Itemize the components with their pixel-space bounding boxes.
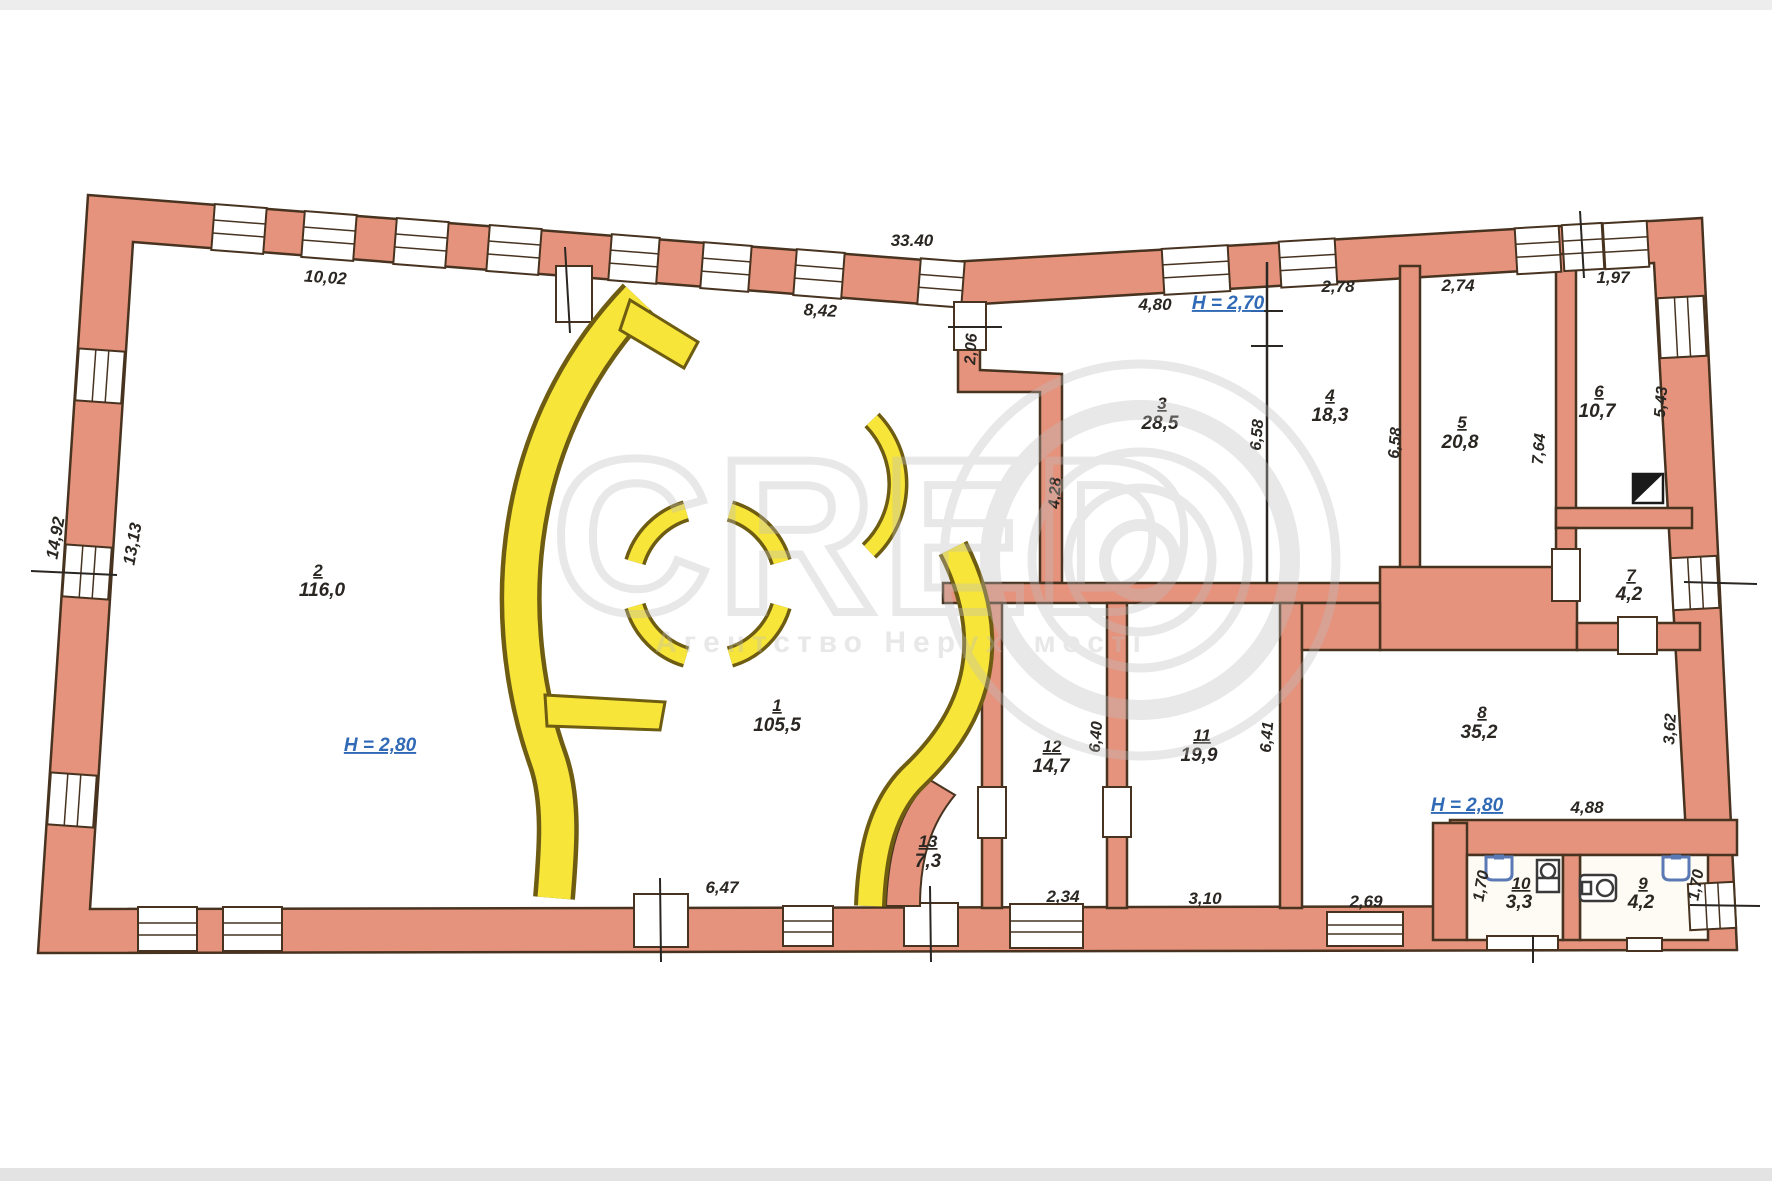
dim-top-total: 33.40: [891, 231, 934, 250]
vent-shaft-icon: [1633, 474, 1663, 503]
door-room12-right: [1103, 787, 1131, 837]
window: [917, 258, 964, 307]
window: [608, 234, 659, 284]
scan-edge-bottom: [0, 1168, 1772, 1181]
room-5-number: 5: [1457, 413, 1467, 432]
window: [793, 249, 844, 299]
window: [47, 772, 97, 827]
height-top: H = 2,70: [1192, 293, 1265, 314]
room-6-number: 6: [1594, 382, 1604, 401]
toilet-icon: [1537, 860, 1559, 892]
room-9-area: 4,2: [1627, 892, 1655, 913]
room-10-number: 10: [1512, 874, 1531, 893]
wall-room8-bottom: [1450, 820, 1737, 855]
height-room8: H = 2,80: [1431, 795, 1504, 816]
window: [393, 218, 448, 268]
window: [783, 906, 833, 946]
dim-hall-door: 2,06: [962, 333, 981, 366]
window: [1010, 904, 1083, 948]
room-10-area: 3,3: [1506, 892, 1533, 913]
door-room7-left: [1552, 549, 1580, 601]
dim-room8-right: 3,62: [1661, 713, 1680, 745]
room-4-area: 18,3: [1312, 405, 1349, 426]
window: [700, 242, 751, 292]
vent-slot-room10: [1487, 936, 1558, 950]
door-room7-bottom: [1618, 617, 1657, 654]
sink-icon: [1663, 857, 1689, 880]
window: [223, 907, 282, 951]
dim-room6-depth: 5,43: [1652, 386, 1672, 419]
opening-room2-room1: [556, 266, 592, 322]
watermark-subtitle: Агентство Нерухомості: [655, 626, 1148, 659]
scan-edge-top: [0, 0, 1772, 10]
dim-room4-width: 2,78: [1320, 277, 1355, 296]
floor-plan-drawing: 1 105,5 2 116,0 3 28,5 4 18,3 5 20,8 6 1…: [0, 0, 1772, 1181]
room-1-number: 1: [772, 696, 781, 715]
room-2-number: 2: [312, 561, 323, 580]
window: [211, 204, 266, 254]
tick-room13-door: [930, 886, 931, 962]
dim-room4-depth: 6,58: [1386, 427, 1406, 460]
window: [138, 907, 197, 951]
room-7-area: 4,2: [1615, 584, 1643, 605]
window: [1657, 296, 1706, 358]
dim-room5-width: 2,74: [1440, 276, 1475, 295]
wall-room12-right-lower: [1107, 835, 1127, 908]
wall-room5-room6: [1556, 254, 1576, 528]
room-13-area: 7,3: [915, 851, 942, 872]
wall-room7-bottom-right: [1655, 623, 1700, 650]
wall-room10-room9: [1563, 855, 1580, 940]
window: [75, 348, 125, 403]
wall-room7-bottom-left: [1577, 623, 1620, 650]
dim-room6-window: 1,97: [1596, 268, 1631, 287]
tick-entrance: [660, 878, 661, 962]
room-8-number: 8: [1477, 703, 1487, 722]
dim-room12-bottom: 2,34: [1045, 887, 1080, 906]
window: [1327, 912, 1403, 946]
room-13-number: 13: [919, 832, 938, 851]
dim-bottom-left: 6,47: [705, 878, 740, 897]
room-4-number: 4: [1324, 386, 1335, 405]
wall-room11-right: [1280, 603, 1302, 908]
room-2-area: 116,0: [299, 580, 346, 601]
scanned-floor-plan-page: 1 105,5 2 116,0 3 28,5 4 18,3 5 20,8 6 1…: [0, 0, 1772, 1181]
room-6-area: 10,7: [1579, 401, 1617, 422]
curved-wall-foot-flare: [545, 695, 665, 730]
room-5-area: 20,8: [1441, 432, 1479, 453]
wall-room6-room7: [1556, 508, 1692, 528]
dim-room3-width: 4,80: [1137, 295, 1172, 314]
boiler-icon: [1580, 875, 1616, 901]
dim-room8-window: 2,69: [1348, 892, 1383, 911]
height-room2: H = 2,80: [344, 735, 417, 756]
dim-room11-bottom: 3,10: [1188, 889, 1222, 908]
dim-top-left: 10,02: [303, 267, 347, 289]
vent-slot-room9: [1627, 938, 1662, 951]
window: [1162, 245, 1231, 295]
dim-room5-depth: 7,64: [1530, 433, 1550, 466]
room-1-area: 105,5: [753, 715, 801, 736]
dim-room11-depth: 6,41: [1258, 721, 1278, 754]
window: [1515, 226, 1562, 274]
dim-top-mid: 8,42: [803, 300, 838, 321]
room-7-number: 7: [1626, 566, 1637, 585]
room-9-number: 9: [1638, 874, 1648, 893]
tick-room9-window: [1690, 905, 1760, 906]
wall-block-room5-room8: [1380, 567, 1577, 650]
room-12-area: 14,7: [1033, 756, 1071, 777]
window: [486, 225, 541, 275]
room-8-area: 35,2: [1461, 722, 1498, 743]
wall-room12-left-lower: [982, 835, 1002, 908]
wall-room4-room5: [1400, 266, 1420, 583]
wall-bathblock-left: [1433, 823, 1467, 940]
dim-room8-bottom: 4,88: [1569, 798, 1604, 817]
window: [301, 211, 356, 261]
door-room12-left: [978, 787, 1006, 838]
window: [1603, 221, 1650, 269]
